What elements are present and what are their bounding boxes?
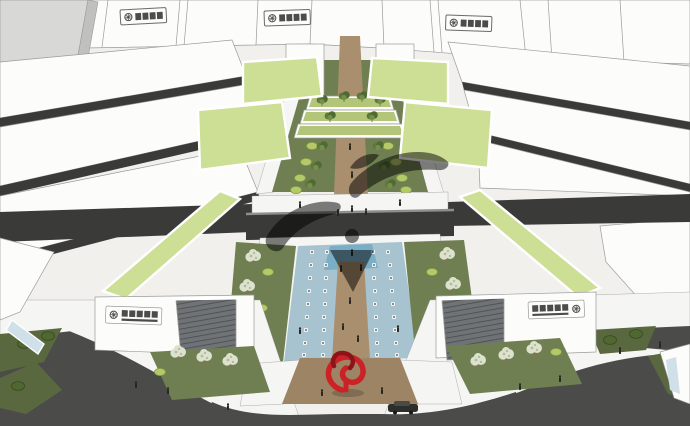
terrace-green-2 — [303, 112, 397, 121]
shrub-icon — [551, 348, 562, 355]
company-logo-icon — [269, 14, 276, 21]
shrub-icon — [604, 336, 617, 345]
shrub-icon — [155, 368, 166, 375]
emblem-core — [345, 229, 359, 243]
rendering-canvas — [0, 0, 690, 426]
roof-sign-2 — [264, 9, 310, 26]
canopy-beam-right — [438, 297, 508, 299]
green-roof-right-1 — [368, 58, 448, 104]
shrub-icon — [12, 382, 25, 391]
shrub-icon — [42, 332, 55, 341]
green-roof-left-2 — [198, 102, 290, 170]
company-logo-icon — [573, 305, 580, 312]
green-roof-left-1 — [243, 57, 322, 104]
scene-svg — [0, 0, 690, 426]
company-logo-icon — [125, 13, 133, 21]
facade-sign-left — [105, 306, 162, 325]
shrub-icon — [301, 158, 312, 165]
shrub-icon — [383, 142, 394, 149]
roof-sign-1 — [120, 8, 167, 25]
shrub-icon — [291, 186, 302, 193]
facade-sign-right — [528, 300, 585, 319]
canopy-beam-left — [172, 298, 240, 299]
shrub-icon — [630, 330, 643, 339]
shrub-icon — [307, 142, 318, 149]
company-logo-icon — [450, 19, 457, 26]
front-lawn-right — [446, 338, 582, 394]
terrace-green-3 — [297, 126, 403, 135]
shrub-icon — [401, 186, 412, 193]
company-logo-icon — [110, 311, 117, 318]
shrub-icon — [427, 268, 438, 275]
shrub-icon — [263, 268, 274, 275]
roof-sign-3 — [445, 15, 491, 32]
shrub-icon — [397, 174, 408, 181]
shrub-icon — [295, 174, 306, 181]
